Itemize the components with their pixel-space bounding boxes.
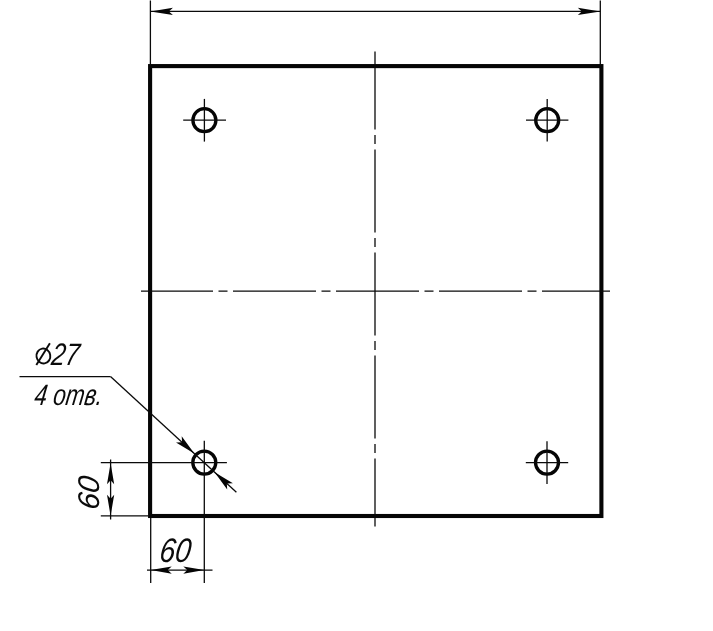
svg-text:60: 60 — [72, 473, 105, 511]
svg-text:4 отв.: 4 отв. — [33, 378, 106, 411]
svg-text:60: 60 — [158, 531, 194, 569]
